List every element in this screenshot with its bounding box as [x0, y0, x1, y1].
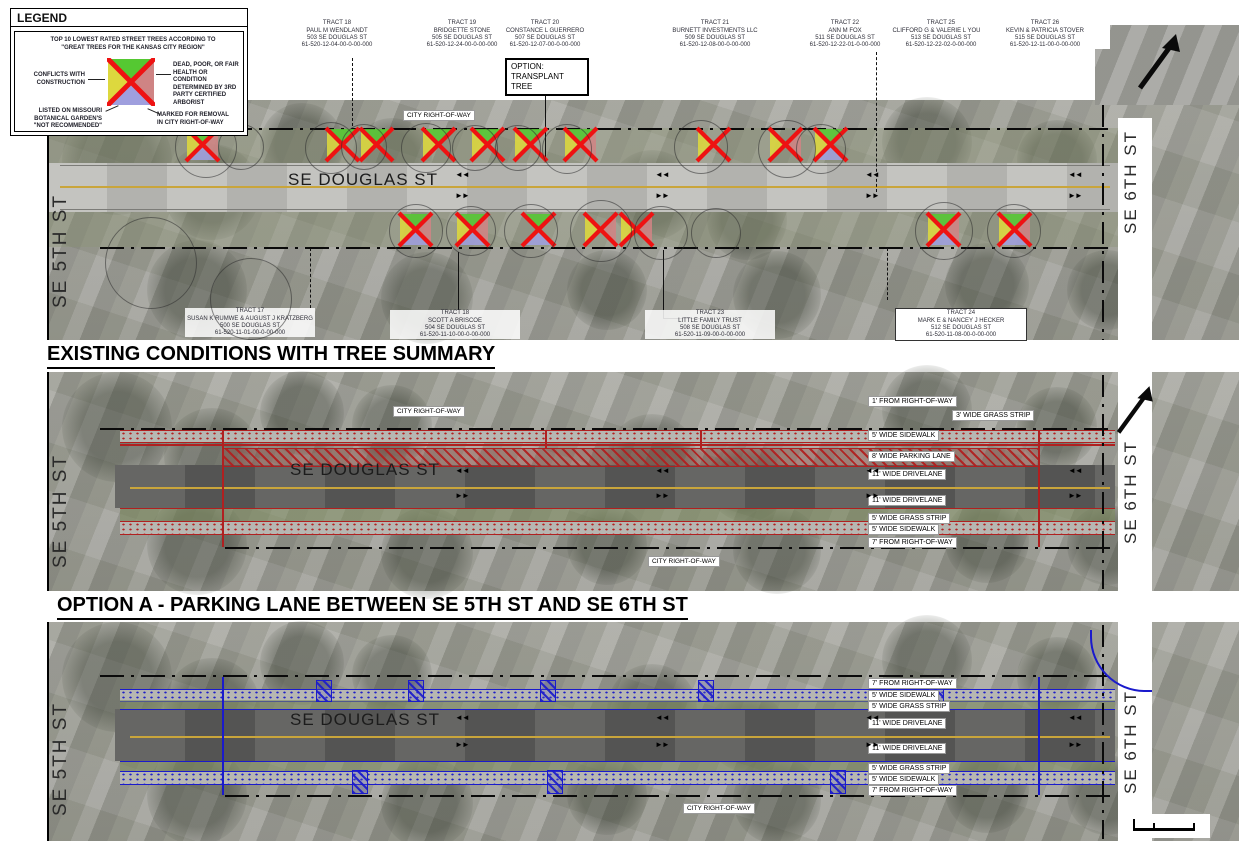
tract-leader — [663, 250, 664, 318]
curb-return-west — [222, 430, 224, 547]
tract-label-18: TRACT 18 PAUL M WENDLANDT 503 SE DOUGLAS… — [272, 20, 402, 49]
dim-5ft-sidewalk-s-b: 5' WIDE SIDEWALK — [868, 774, 939, 785]
tract-number: TRACT 21 — [650, 20, 780, 27]
curb-return-west-b — [222, 677, 224, 795]
tree-canopy — [567, 250, 647, 330]
row-line-south-a — [225, 547, 1112, 549]
grass-strip-south-a — [120, 508, 1115, 522]
north-arrow-icon — [1130, 30, 1186, 96]
driveway-apron — [408, 680, 424, 702]
se-6th-st-label-p3: SE 6TH ST — [1121, 684, 1141, 794]
sidewalk-south-a — [120, 521, 1115, 535]
se-5th-st-label-p3: SE 5TH ST — [50, 666, 72, 816]
se-6th-st-label-p2: SE 6TH ST — [1121, 434, 1141, 544]
tract-parcel: 61-520-11-09-00-0-00-000 — [645, 332, 775, 339]
tract-parcel: 61-520-11-01-00-0-00-000 — [185, 330, 315, 337]
tract-address: 508 SE DOUGLAS ST — [645, 325, 775, 332]
tract-label-20: TRACT 20 CONSTANCE L GUERRERO 507 SE DOU… — [480, 20, 610, 49]
scale-bar-tick — [1133, 819, 1135, 831]
tract-number: TRACT 24 — [896, 310, 1026, 317]
legend-inner: TOP 10 LOWEST RATED STREET TREES ACCORDI… — [14, 31, 244, 132]
dim-5ft-grass-s-b: 5' WIDE GRASS STRIP — [868, 763, 950, 774]
dim-11ft-drive-1-b: 11' WIDE DRIVELANE — [868, 718, 946, 729]
row-line-6th-a — [1102, 375, 1104, 589]
tract-address: 504 SE DOUGLAS ST — [390, 325, 520, 332]
legend-not-recommended: LISTED ON MISSOURI BOTANICAL GARDEN'S "N… — [27, 108, 102, 131]
scale-bar-line — [1133, 828, 1195, 831]
plan-sheet: SE 5TH ST SE 6TH ST SE DOUGLAS ST CITY R… — [0, 0, 1239, 841]
legend-box: LEGEND TOP 10 LOWEST RATED STREET TREES … — [10, 8, 248, 136]
tract-parcel: 61-520-12-11-00-0-00-000 — [980, 42, 1110, 49]
curb-return-east-b — [1038, 677, 1040, 795]
tract-address: 503 SE DOUGLAS ST — [272, 35, 402, 42]
centerline-a — [130, 487, 1110, 489]
city-row-label-p1: CITY RIGHT-OF-WAY — [403, 110, 475, 121]
tract-address: 512 SE DOUGLAS ST — [896, 325, 1026, 332]
sidewalk-north-a — [120, 430, 1115, 443]
tract-owner: LITTLE FAMILY TRUST — [645, 318, 775, 325]
tract-address: 515 SE DOUGLAS ST — [980, 35, 1110, 42]
legend-leader — [88, 79, 105, 80]
panel2-title: OPTION A - PARKING LANE BETWEEN SE 5TH S… — [57, 594, 688, 620]
se-douglas-st-label-p3: SE DOUGLAS ST — [290, 710, 440, 730]
tract-owner: MARK E & NANCEY J HECKER — [896, 318, 1026, 325]
legend-leader — [156, 74, 171, 75]
tract-parcel: 61-520-11-08-00-0-00-000 — [896, 332, 1026, 339]
dim-1ft-row: 1' FROM RIGHT-OF-WAY — [868, 396, 957, 407]
tract-number: TRACT 17 — [185, 308, 315, 315]
dim-7ft-row-s-b: 7' FROM RIGHT-OF-WAY — [868, 785, 957, 796]
driveway-apron — [352, 770, 368, 794]
dim-8ft-parking: 8' WIDE PARKING LANE — [868, 451, 955, 462]
legend-note: TOP 10 LOWEST RATED STREET TREES ACCORDI… — [43, 37, 223, 52]
neatline-left — [47, 107, 49, 340]
option-line2: TRANSPLANT — [511, 72, 583, 82]
legend-dead-poor: DEAD, POOR, OR FAIR HEALTH OR CONDITION … — [173, 62, 239, 107]
legend-marked-removal: MARKED FOR REMOVAL IN CITY RIGHT-OF-WAY — [157, 112, 235, 127]
tract-parcel: 61-520-12-07-00-0-00-000 — [480, 42, 610, 49]
tract-parcel: 61-520-12-08-00-0-00-000 — [650, 42, 780, 49]
row-line-6th — [1102, 105, 1104, 340]
driveway-apron — [547, 770, 563, 794]
dim-11ft-drive-2-b: 11' WIDE DRIVELANE — [868, 743, 946, 754]
tract-owner: KEVIN & PATRICIA STOVER — [980, 28, 1110, 35]
tract-label-21: TRACT 21 BURNETT INVESTMENTS LLC 509 SE … — [650, 20, 780, 49]
driveway-apron — [540, 680, 556, 702]
tract-number: TRACT 23 — [645, 310, 775, 317]
dim-3ft-grass: 3' WIDE GRASS STRIP — [952, 410, 1034, 421]
scale-bar-tick — [1193, 823, 1195, 831]
scale-bar-tick — [1153, 823, 1155, 831]
legend-tree-symbol — [107, 58, 155, 106]
option-leader — [545, 96, 546, 158]
se-5th-st-label-p1: SE 5TH ST — [50, 128, 72, 308]
tract-address: 507 SE DOUGLAS ST — [480, 35, 610, 42]
tract-leader — [352, 58, 353, 126]
city-row-label-p3-bottom: CITY RIGHT-OF-WAY — [683, 803, 755, 814]
curb-line — [120, 444, 1115, 446]
dim-7ft-row-n-b: 7' FROM RIGHT-OF-WAY — [868, 678, 957, 689]
tract-label-26: TRACT 26 KEVIN & PATRICIA STOVER 515 SE … — [980, 20, 1110, 49]
legend-title: LEGEND — [11, 9, 247, 27]
centerline-b — [130, 736, 1110, 738]
tract-label-17: TRACT 17 SUSAN K RUMWE & AUGUST J KRATZB… — [185, 308, 315, 337]
centerline — [60, 186, 1110, 188]
curb-return-east — [1038, 430, 1040, 547]
neatline-left-p2 — [47, 372, 49, 591]
option-line1: OPTION: — [511, 62, 583, 72]
tract-leader — [458, 252, 459, 310]
tract-parcel: 61-520-12-04-00-0-00-000 — [272, 42, 402, 49]
row-line-north-b — [100, 675, 1112, 677]
driveway-apron — [830, 770, 846, 794]
row-line-south-b — [225, 795, 1112, 797]
panel1-title: EXISTING CONDITIONS WITH TREE SUMMARY — [47, 343, 495, 369]
scale-bar — [1133, 819, 1195, 831]
tract-owner: CONSTANCE L GUERRERO — [480, 28, 610, 35]
tract-owner: SUSAN K RUMWE & AUGUST J KRATZBERG — [185, 316, 315, 323]
neatline-left-p3 — [47, 622, 49, 841]
driveway-apron — [698, 680, 714, 702]
tract-leader — [310, 248, 311, 308]
city-row-label-p2-bottom: CITY RIGHT-OF-WAY — [648, 556, 720, 567]
legend-leader — [105, 105, 118, 112]
dim-5ft-grass-n-b: 5' WIDE GRASS STRIP — [868, 701, 950, 712]
se-douglas-st-label-p2: SE DOUGLAS ST — [290, 460, 440, 480]
tract-owner: BURNETT INVESTMENTS LLC — [650, 28, 780, 35]
grass-strip-north-b — [120, 700, 1115, 710]
se-douglas-st-label-p1: SE DOUGLAS ST — [288, 170, 438, 190]
road-edge — [60, 165, 1110, 166]
tract-leader — [887, 248, 888, 300]
dim-5ft-grass-s: 5' WIDE GRASS STRIP — [868, 513, 950, 524]
tract-number: TRACT 20 — [480, 20, 610, 27]
driveway-apron — [316, 680, 332, 702]
tract-number: TRACT 18 — [390, 310, 520, 317]
tract-owner: SCOTT A BRISCOE — [390, 318, 520, 325]
dim-11ft-drive-1: 11' WIDE DRIVELANE — [868, 469, 946, 480]
tract-label-18b: TRACT 18 SCOTT A BRISCOE 504 SE DOUGLAS … — [390, 310, 520, 339]
tract-owner: PAUL M WENDLANDT — [272, 28, 402, 35]
tract-label-24: TRACT 24 MARK E & NANCEY J HECKER 512 SE… — [895, 308, 1027, 341]
tract-leader — [876, 52, 877, 192]
se-5th-st-label-p2: SE 5TH ST — [50, 418, 72, 568]
option-transplant-tree-callout: OPTION: TRANSPLANT TREE — [505, 58, 589, 96]
row-line-north-a — [100, 428, 1112, 430]
douglas-st-pavement-b — [115, 709, 1115, 761]
tract-address: 509 SE DOUGLAS ST — [650, 35, 780, 42]
tract-number: TRACT 26 — [980, 20, 1110, 27]
se-6th-st-label-p1: SE 6TH ST — [1121, 124, 1141, 234]
tract-parcel: 61-520-11-10-00-0-00-000 — [390, 332, 520, 339]
sidewalk-south-b — [120, 771, 1115, 785]
dim-11ft-drive-2: 11' WIDE DRIVELANE — [868, 495, 946, 506]
dim-5ft-sidewalk-n: 5' WIDE SIDEWALK — [868, 430, 939, 441]
dim-5ft-sidewalk-s: 5' WIDE SIDEWALK — [868, 524, 939, 535]
south-verge — [47, 212, 1118, 247]
city-row-label-p2-top: CITY RIGHT-OF-WAY — [393, 406, 465, 417]
tract-number: TRACT 18 — [272, 20, 402, 27]
option-line3: TREE — [511, 82, 583, 92]
north-arrow-icon — [1110, 382, 1158, 440]
dim-5ft-sidewalk-n-b: 5' WIDE SIDEWALK — [868, 690, 939, 701]
row-line-south — [100, 247, 1108, 249]
row-line-north — [228, 128, 1108, 130]
road-edge — [60, 209, 1110, 210]
dim-7ft-row: 7' FROM RIGHT-OF-WAY — [868, 537, 957, 548]
tract-label-23: TRACT 23 LITTLE FAMILY TRUST 508 SE DOUG… — [645, 310, 775, 339]
legend-conflicts: CONFLICTS WITH CONSTRUCTION — [23, 72, 85, 87]
tract-address: 500 SE DOUGLAS ST — [185, 323, 315, 330]
